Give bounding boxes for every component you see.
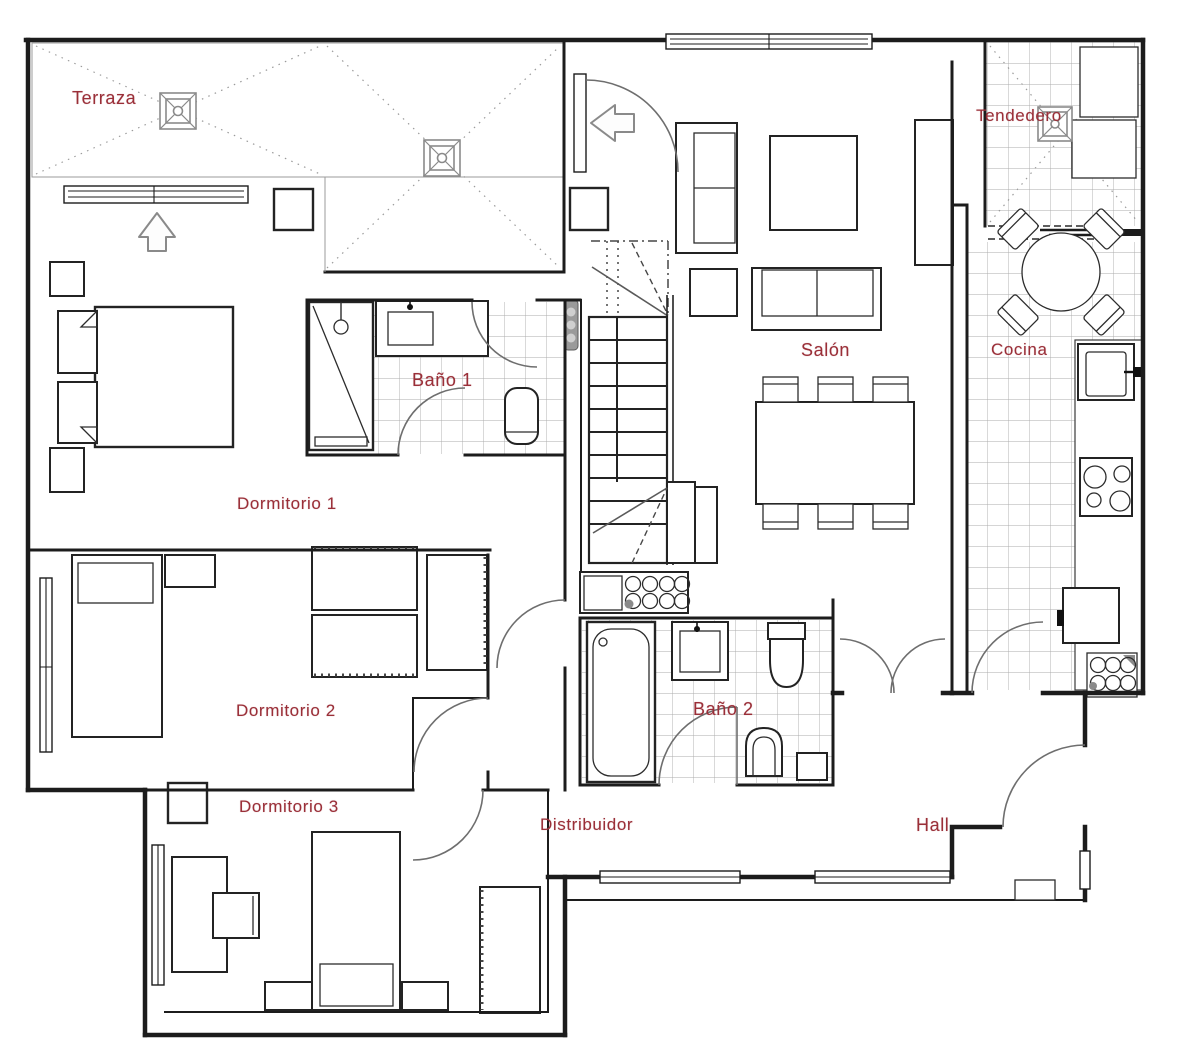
kitchen-sink [1078,344,1142,400]
chair [763,504,798,529]
dining-table [756,402,914,504]
room-label-bano1: Baño 1 [412,370,473,391]
understairs-cabinet [580,572,690,613]
room-label-distribuidor: Distribuidor [540,815,633,835]
bedroom-3 [168,783,540,1013]
pillow [58,382,97,443]
single-bed [312,832,400,1010]
door-swing-icon [413,790,483,860]
nightstand [165,555,215,587]
window [600,871,740,883]
terrace-pillar [274,189,313,230]
terrace-pillar [570,188,608,230]
terrace-area [32,43,608,272]
toilet [505,388,538,444]
washbasin-counter [376,301,488,356]
terrace-decking [32,43,564,177]
pillow [58,311,97,373]
window [152,845,164,985]
double-bed [95,307,233,447]
room-label-hall: Hall [916,815,949,836]
door-swing-icon [497,600,565,668]
entry-arrow-up-icon [139,213,175,251]
entrance-step [1015,880,1055,900]
stairs-cut-line [591,241,668,317]
stairs-body [589,317,667,563]
stairs-landing [695,487,717,563]
room-label-cocina: Cocina [991,340,1048,360]
chair [873,504,908,529]
nightstand [402,982,448,1010]
entrance-door-icon [1003,745,1085,827]
shower [309,302,373,450]
sofa [676,123,737,253]
side-table [770,136,857,230]
room-label-dormitorio1: Dormitorio 1 [237,494,337,514]
tv-cabinet [915,120,953,265]
nightstand [50,262,84,296]
floor-plan: Terraza Tendedero Salón Cocina Baño 1 Do… [0,0,1200,1055]
appliance [1080,47,1138,117]
nightstand [50,448,84,492]
washbasin [672,622,728,680]
floor-drain-icon [160,93,196,129]
armchair [690,269,737,316]
room-label-dormitorio3: Dormitorio 3 [239,797,339,817]
floor-drain-icon [424,140,460,176]
toilet [768,623,805,687]
sofa [752,268,881,330]
drying-area [985,42,1143,239]
double-door-icon [840,639,945,693]
fridge [1057,588,1119,643]
chair [873,377,908,402]
wardrobe [312,547,487,677]
kitchen [967,208,1143,697]
room-label-terraza: Terraza [72,88,136,109]
chair [818,377,853,402]
stove [1080,458,1132,516]
sliding-terrace-door [64,186,248,203]
door-swing-icon [414,698,488,772]
terrace-decking-right [325,177,563,272]
window [1080,851,1090,889]
desk-chair [213,893,259,938]
appliance [1072,120,1136,178]
chair [818,504,853,529]
counter-unit [1087,653,1137,697]
bathtub [587,622,655,782]
window [40,578,52,752]
nightstand [265,982,312,1010]
stairs-landing [667,482,695,563]
bath2-cabinet [797,753,827,780]
terrace-slope-dots [36,46,560,268]
window [815,871,950,883]
floor-plan-drawing [0,0,1200,1055]
room-label-tendedero: Tendedero [976,106,1062,126]
chair [763,377,798,402]
room-label-dormitorio2: Dormitorio 2 [236,701,336,721]
room-label-bano2: Baño 2 [693,699,754,720]
bedroom-1 [50,262,233,492]
entry-arrow-left-icon [591,105,634,141]
round-table [1022,233,1100,311]
wardrobe [480,887,540,1013]
single-bed [72,555,162,737]
bidet [746,728,782,776]
window [666,34,872,49]
room-label-salon: Salón [801,340,850,361]
